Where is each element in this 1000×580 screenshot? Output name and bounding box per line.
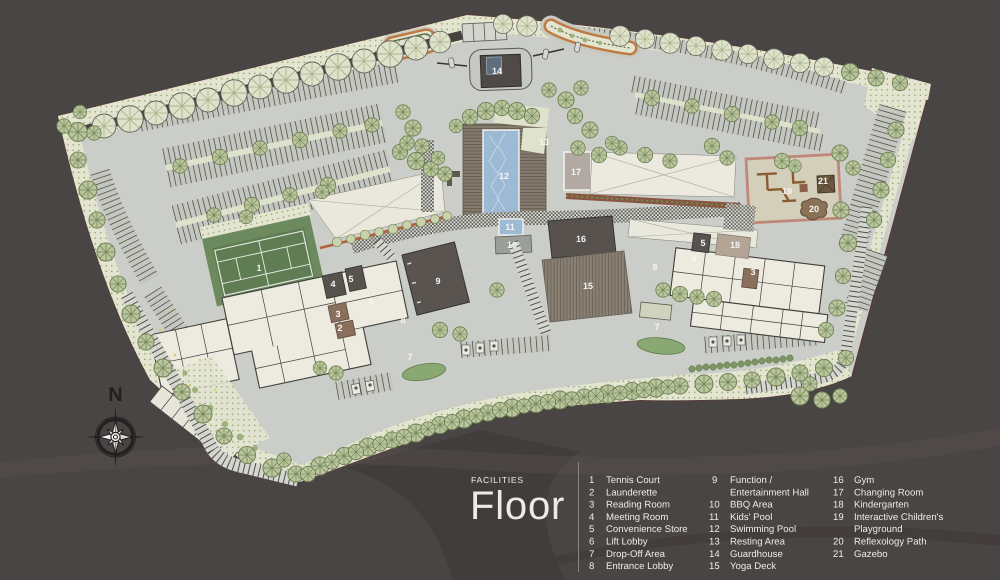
svg-text:20: 20 — [833, 537, 844, 548]
svg-text:3: 3 — [589, 500, 594, 511]
svg-text:5: 5 — [589, 524, 594, 535]
svg-text:Launderette: Launderette — [606, 487, 657, 498]
svg-text:19: 19 — [782, 186, 792, 196]
svg-text:5: 5 — [348, 274, 353, 284]
svg-text:18: 18 — [833, 500, 844, 511]
svg-text:13: 13 — [709, 537, 720, 548]
svg-text:15: 15 — [583, 281, 593, 291]
svg-text:Drop-Off Area: Drop-Off Area — [606, 549, 666, 560]
svg-text:Resting Area: Resting Area — [730, 537, 786, 548]
svg-text:10: 10 — [507, 240, 517, 250]
svg-text:Meeting Room: Meeting Room — [606, 512, 668, 523]
svg-text:18: 18 — [730, 240, 740, 250]
svg-text:4: 4 — [330, 279, 335, 289]
svg-text:Kindergarten: Kindergarten — [854, 500, 909, 511]
svg-text:14: 14 — [709, 549, 720, 560]
svg-text:11: 11 — [709, 512, 719, 523]
svg-text:Changing Room: Changing Room — [854, 487, 923, 498]
svg-text:15: 15 — [709, 561, 720, 572]
svg-text:13: 13 — [539, 137, 549, 147]
svg-text:19: 19 — [833, 512, 844, 523]
svg-text:9: 9 — [712, 475, 717, 486]
svg-text:12: 12 — [709, 524, 720, 535]
svg-text:Reading Room: Reading Room — [606, 500, 670, 511]
svg-text:6: 6 — [589, 537, 594, 548]
svg-text:6: 6 — [691, 254, 696, 264]
svg-text:7: 7 — [407, 352, 412, 362]
svg-text:Convenience Store: Convenience Store — [606, 524, 688, 535]
svg-text:Entertainment Hall: Entertainment Hall — [730, 487, 809, 498]
svg-text:8: 8 — [652, 262, 657, 272]
svg-text:BBQ Area: BBQ Area — [730, 500, 773, 511]
svg-text:21: 21 — [818, 176, 828, 186]
svg-text:2: 2 — [337, 323, 342, 333]
svg-text:1: 1 — [256, 263, 261, 273]
svg-text:Reflexology Path: Reflexology Path — [854, 537, 927, 548]
svg-text:Lift Lobby: Lift Lobby — [606, 537, 648, 548]
svg-text:3: 3 — [750, 267, 755, 277]
svg-text:Interactive Children's: Interactive Children's — [854, 512, 943, 523]
svg-text:N: N — [108, 384, 122, 406]
svg-text:8: 8 — [400, 315, 405, 325]
svg-text:21: 21 — [833, 549, 844, 560]
svg-text:11: 11 — [505, 222, 515, 232]
svg-text:9: 9 — [435, 276, 440, 286]
svg-text:17: 17 — [833, 487, 844, 498]
svg-text:Floor: Floor — [470, 484, 565, 528]
svg-text:Entrance Lobby: Entrance Lobby — [606, 561, 673, 572]
svg-text:5: 5 — [700, 238, 705, 248]
svg-text:16: 16 — [833, 475, 844, 486]
svg-text:Playground: Playground — [854, 524, 903, 535]
svg-text:Yoga Deck: Yoga Deck — [730, 561, 776, 572]
svg-text:Tennis Court: Tennis Court — [606, 475, 660, 486]
svg-text:Kids' Pool: Kids' Pool — [730, 512, 772, 523]
svg-text:8: 8 — [589, 561, 594, 572]
svg-text:3: 3 — [335, 309, 340, 319]
svg-text:1: 1 — [589, 475, 594, 486]
svg-text:12: 12 — [499, 171, 509, 181]
svg-text:Gazebo: Gazebo — [854, 549, 888, 560]
svg-text:16: 16 — [576, 234, 586, 244]
svg-text:6: 6 — [368, 297, 373, 307]
svg-text:14: 14 — [492, 66, 502, 76]
svg-text:17: 17 — [571, 167, 581, 177]
svg-text:10: 10 — [709, 500, 720, 511]
svg-text:7: 7 — [654, 322, 659, 332]
svg-text:4: 4 — [589, 512, 595, 523]
svg-text:2: 2 — [589, 487, 594, 498]
svg-text:20: 20 — [809, 204, 819, 214]
svg-text:Gym: Gym — [854, 475, 874, 486]
svg-text:Function /: Function / — [730, 475, 772, 486]
svg-text:Guardhouse: Guardhouse — [730, 549, 783, 560]
svg-text:Swimming Pool: Swimming Pool — [730, 524, 796, 535]
svg-text:7: 7 — [589, 549, 594, 560]
